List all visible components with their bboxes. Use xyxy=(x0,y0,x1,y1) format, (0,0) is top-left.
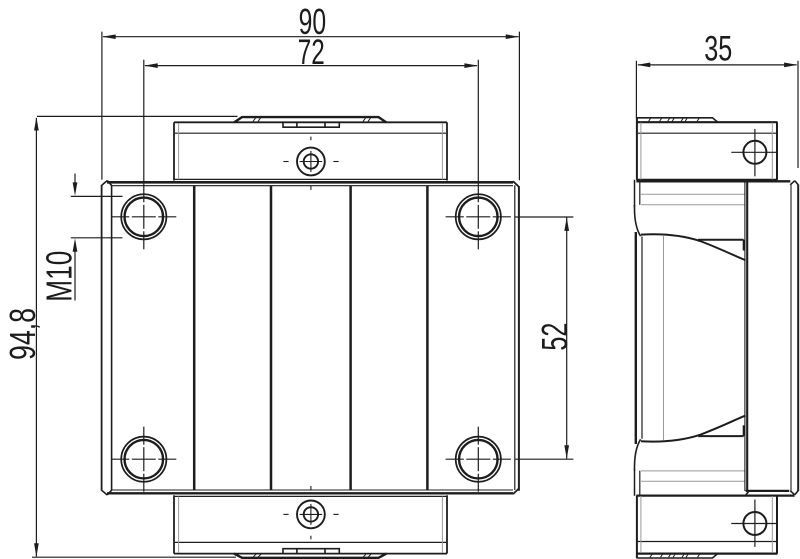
svg-text:M10: M10 xyxy=(38,251,79,302)
svg-text:35: 35 xyxy=(704,30,732,69)
svg-text:52: 52 xyxy=(534,323,575,351)
